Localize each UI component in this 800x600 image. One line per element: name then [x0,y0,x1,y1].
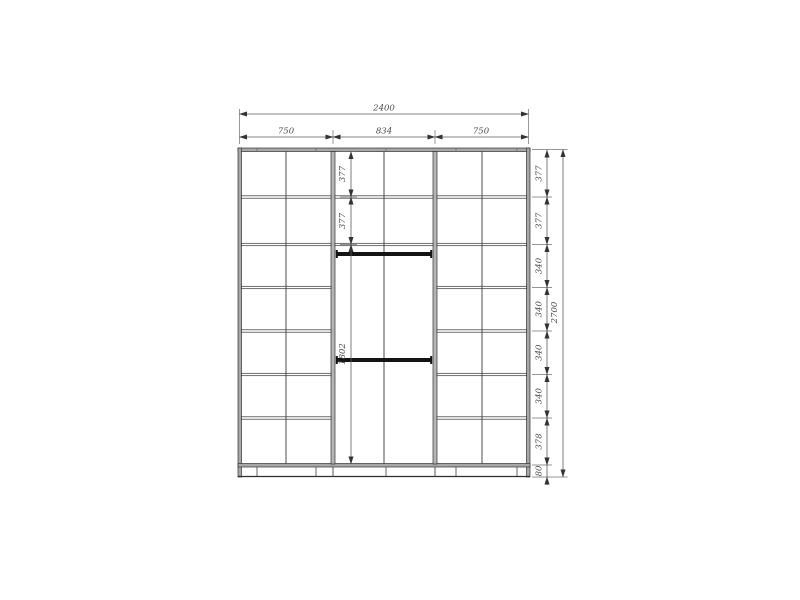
dim-row-4: 340 [535,301,545,318]
dim-mid-row-1: 377 [338,165,348,182]
dim-row-3: 340 [535,257,545,274]
divider-left [331,152,335,465]
rail-bracket [430,356,432,364]
dimension-extension-lines [240,109,568,477]
dim-total-height: 2700 [550,301,560,324]
dim-mid-hanging: 1802 [338,343,348,365]
right-side-panel [527,148,531,477]
divider-right [433,152,437,465]
dim-row-5: 340 [535,344,545,361]
cabinet-structure [238,148,530,477]
bottom-panel [238,464,530,468]
dimension-labels: 2400 750 834 750 377 377 340 340 340 340… [278,104,560,477]
dim-section-middle: 834 [376,127,392,137]
dimension-lines [240,114,564,485]
left-side-panel [238,148,242,477]
dim-row-6: 340 [535,388,545,405]
plinth-base [238,467,530,477]
dim-row-1: 377 [535,165,545,182]
drawing-canvas: 2400 750 834 750 377 377 340 340 340 340… [0,0,800,600]
dim-section-left: 750 [278,127,295,137]
dim-section-right: 750 [473,127,490,137]
wardrobe-technical-drawing: 2400 750 834 750 377 377 340 340 340 340… [0,0,800,600]
dim-plinth: 80 [535,465,545,476]
dim-total-width: 2400 [372,104,395,114]
top-panel [238,148,530,152]
dim-row-2: 377 [535,212,545,229]
rail-bracket [336,250,338,258]
dim-mid-row-2: 377 [338,212,348,229]
dim-row-7: 378 [535,433,545,450]
rail-bracket [430,250,432,258]
